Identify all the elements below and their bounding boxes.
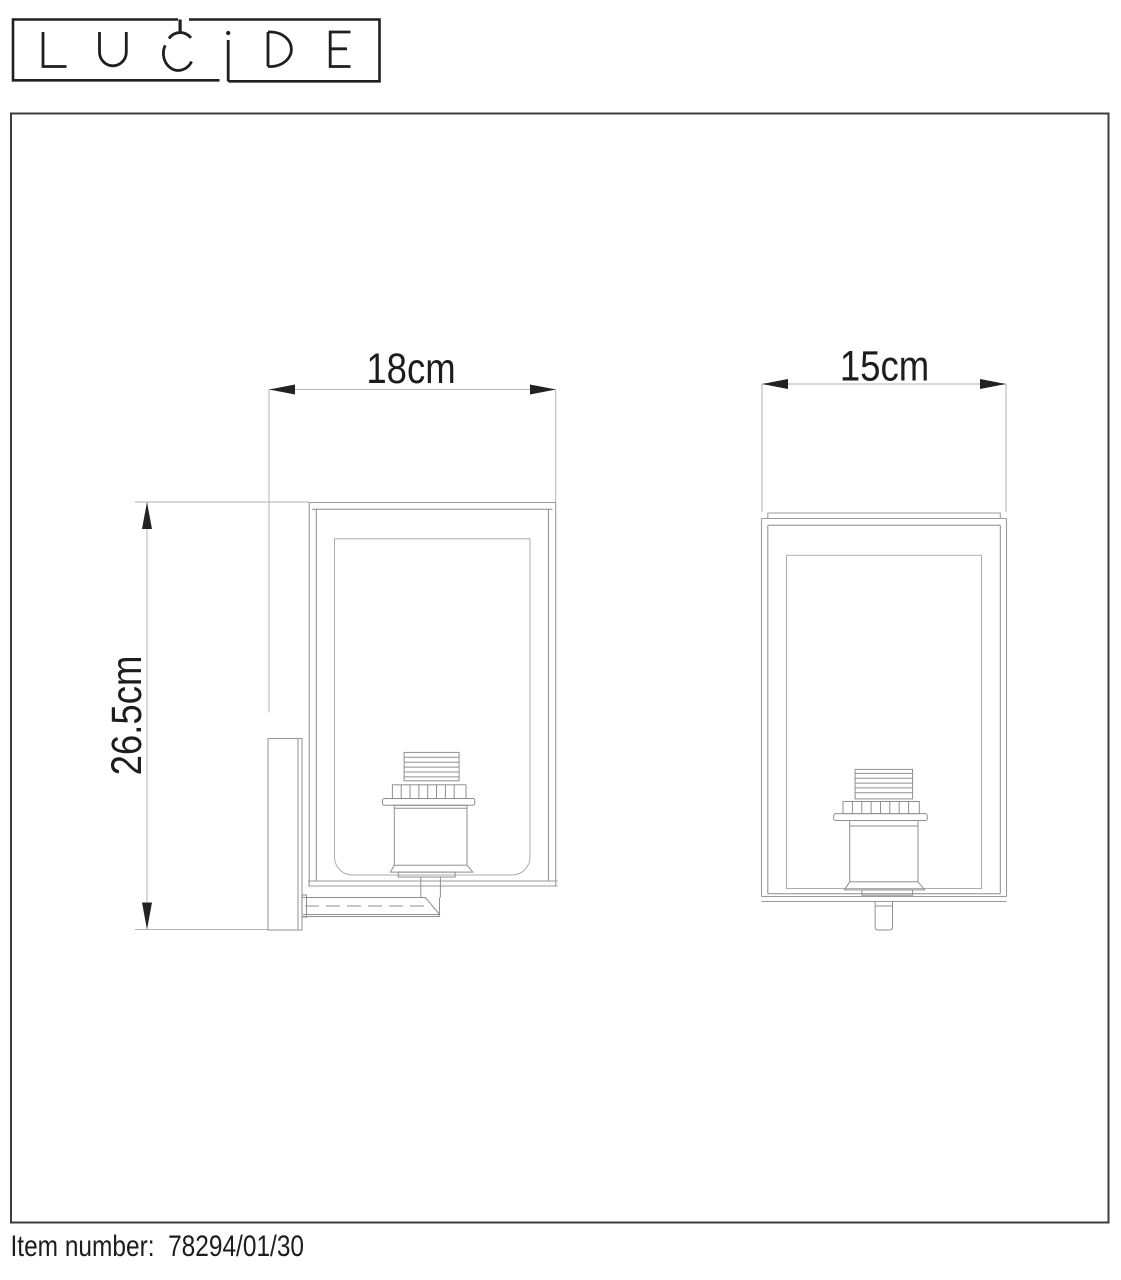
svg-text:26.5cm: 26.5cm: [103, 656, 150, 776]
svg-text:Item number: 78294/01/30: Item number: 78294/01/30: [11, 1229, 305, 1263]
svg-text:15cm: 15cm: [840, 343, 929, 390]
svg-text:18cm: 18cm: [366, 345, 455, 392]
